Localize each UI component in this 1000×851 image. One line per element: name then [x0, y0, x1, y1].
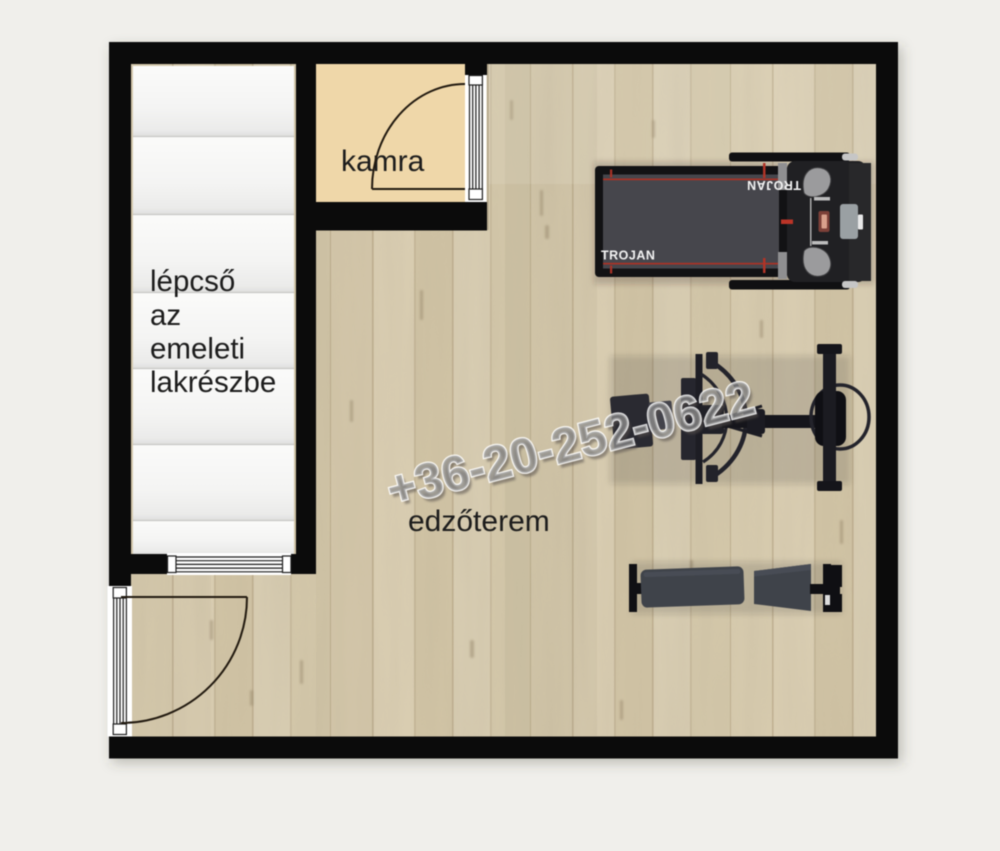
svg-text:emeleti: emeleti	[150, 333, 245, 366]
svg-text:TROJAN: TROJAN	[747, 178, 801, 192]
svg-text:kamra: kamra	[341, 145, 425, 178]
svg-text:lépcső: lépcső	[150, 265, 235, 298]
svg-text:TROJAN: TROJAN	[601, 249, 655, 263]
svg-text:lakrészbe: lakrészbe	[150, 366, 276, 399]
svg-text:az: az	[150, 299, 181, 332]
